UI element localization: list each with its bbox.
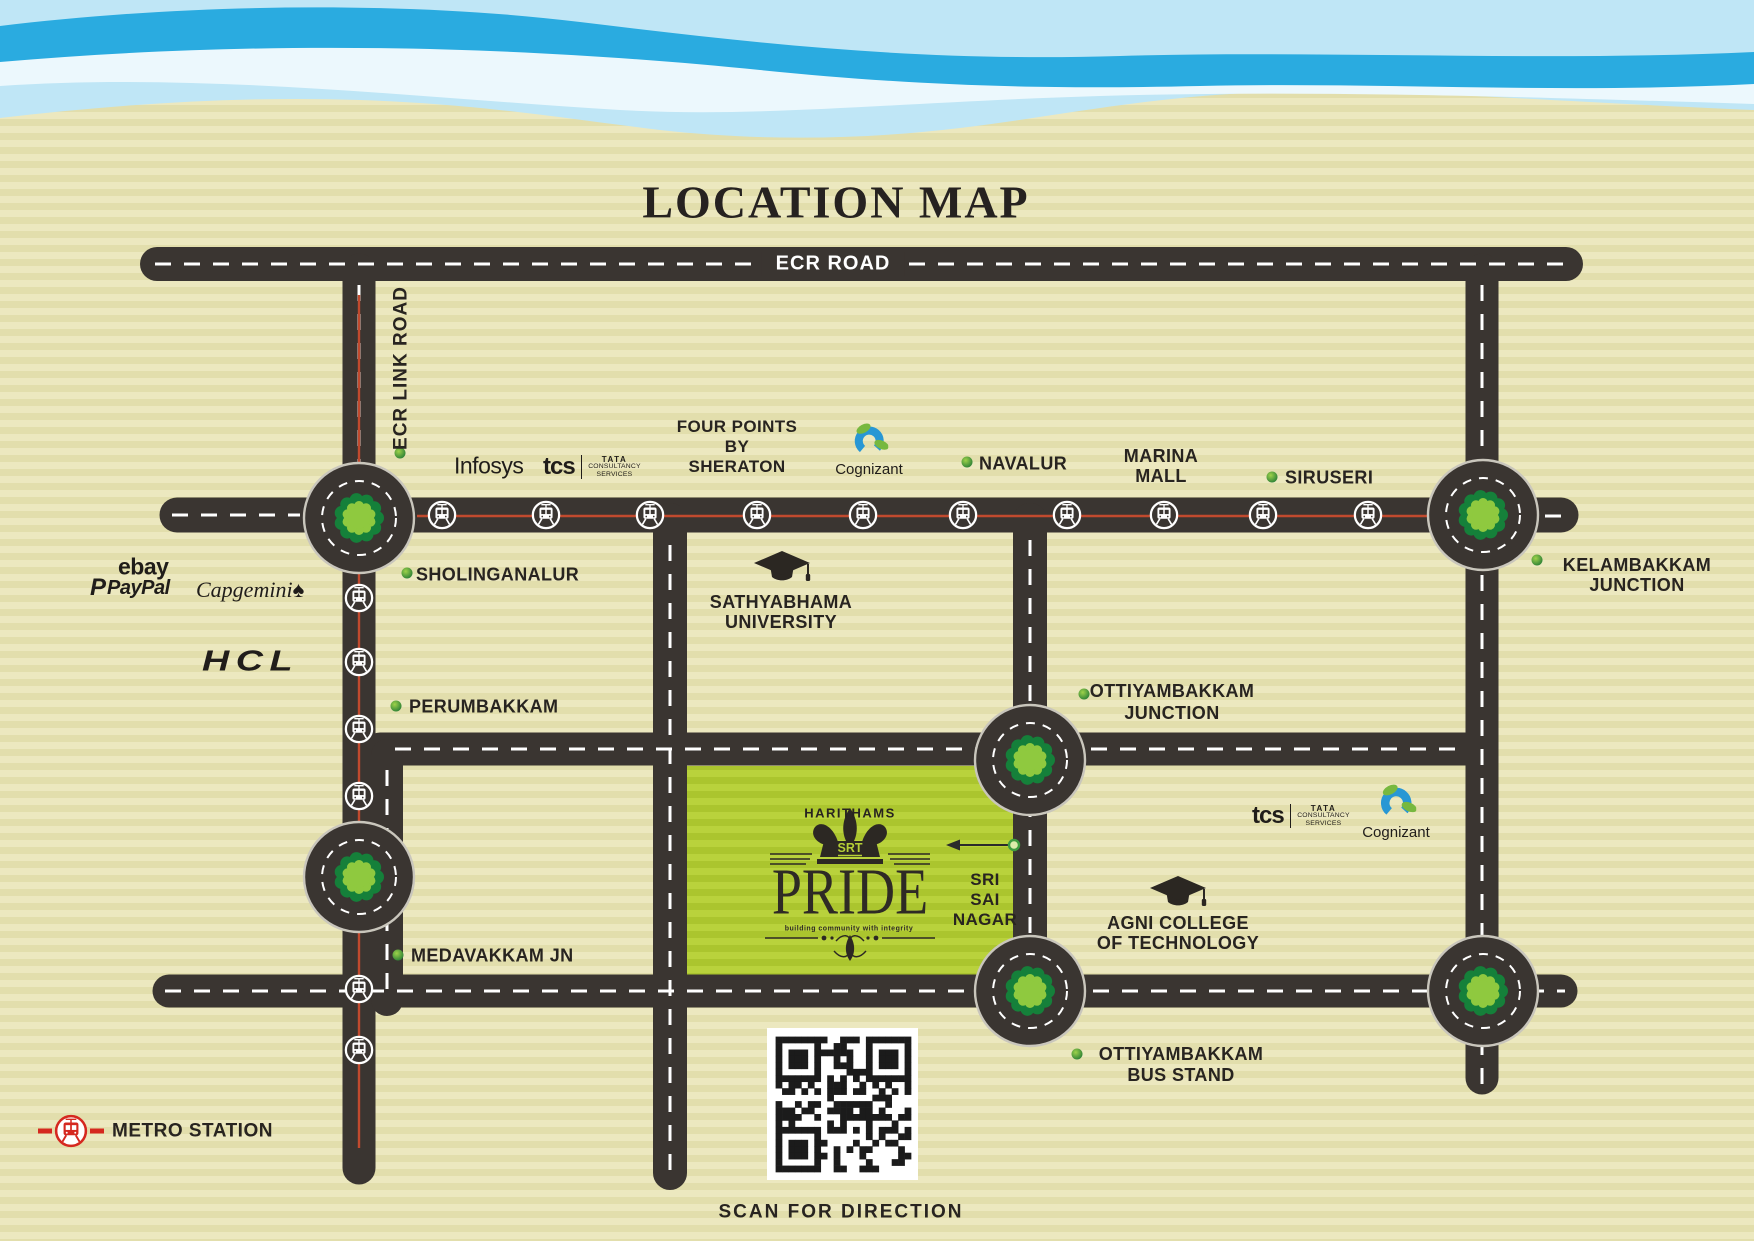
tcs-fullname: TATA CONSULTANCY SERVICES <box>1297 805 1350 828</box>
paypal-mark-icon: P <box>90 574 106 602</box>
metro-station-icon <box>346 649 372 675</box>
place-label-perumbakkam: PERUMBAKKAM <box>409 697 558 718</box>
place-marker-dot <box>1079 689 1090 700</box>
tata-text: TATA <box>588 456 641 464</box>
page-title: LOCATION MAP <box>642 192 1029 213</box>
place-label-navalur: NAVALUR <box>979 454 1067 475</box>
metro-station-icon <box>850 502 876 528</box>
metro-station-icon <box>1355 502 1381 528</box>
roundabout <box>304 822 414 932</box>
metro-station-icon <box>346 585 372 611</box>
cognizant-logo-2: Cognizant <box>1362 783 1430 841</box>
metro-station-icon <box>346 716 372 742</box>
place-label-marina-mall: MARINA MALL <box>1124 446 1198 486</box>
cognizant-logo: Cognizant <box>835 422 903 478</box>
roundabout <box>975 705 1085 815</box>
place-label-kelambakkam-junction: KELAMBAKKAM JUNCTION <box>1563 555 1711 595</box>
place-label-sholinganalur: SHOLINGANALUR <box>416 565 579 586</box>
place-label-siruseri: SIRUSERI <box>1285 468 1373 489</box>
roundabout <box>304 463 414 573</box>
metro-station-icon <box>637 502 663 528</box>
place-label-agni-college: AGNI COLLEGE OF TECHNOLOGY <box>1097 913 1259 953</box>
place-label-ottiyambakkam-bus-stand: OTTIYAMBAKKAM BUS STAND <box>1099 1044 1264 1086</box>
place-marker-dot <box>391 701 402 712</box>
road-label-ecr: ECR ROAD <box>762 252 905 277</box>
place-marker-dot <box>962 457 973 468</box>
services-text: SERVICES <box>1297 820 1350 828</box>
tcs-logo: tcs TATA CONSULTANCY SERVICES <box>543 455 641 479</box>
metro-station-icon <box>533 502 559 528</box>
roundabout <box>975 936 1085 1046</box>
tcs-wordmark: tcs <box>1252 805 1284 827</box>
place-marker-dot <box>1072 1049 1083 1060</box>
place-label-medavakkam-jn: MEDAVAKKAM JN <box>411 946 574 967</box>
metro-station-icon <box>346 1037 372 1063</box>
project-name: PRIDE <box>772 882 928 903</box>
capgemini-logo: Capgemini♠ <box>196 577 304 603</box>
project-tagline: building community with integrity <box>785 919 914 940</box>
cognizant-wordmark: Cognizant <box>1362 824 1430 841</box>
place-label-four-points: FOUR POINTS BY SHERATON <box>677 417 798 477</box>
metro-station-icon <box>1054 502 1080 528</box>
metro-station-icon <box>346 976 372 1002</box>
hcl-logo: HCL <box>202 646 299 679</box>
metro-station-icon <box>950 502 976 528</box>
services-text: SERVICES <box>588 471 641 479</box>
consultancy-text: CONSULTANCY <box>1297 812 1350 820</box>
college-cap-icon <box>1150 876 1206 906</box>
metro-station-icon <box>1151 502 1177 528</box>
place-label-ottiyambakkam-junction: OTTIYAMBAKKAM JUNCTION <box>1090 680 1255 724</box>
paypal-logo: P PayPal <box>90 574 170 602</box>
crown-monogram: SRT <box>838 841 863 855</box>
tata-text: TATA <box>1297 805 1350 813</box>
project-brand: HARITHAMS <box>804 803 896 824</box>
road-label-ecr-link: ECR LINK ROAD <box>391 286 412 450</box>
red-tram-icon <box>56 1116 86 1146</box>
place-marker-dot <box>1532 555 1543 566</box>
place-marker-dot <box>402 568 413 579</box>
place-label-sri-sai-nagar: SRI SAI NAGAR <box>953 870 1017 930</box>
roundabout <box>1428 936 1538 1046</box>
cognizant-icon <box>1376 783 1416 823</box>
metro-station-icon <box>429 502 455 528</box>
cognizant-wordmark: Cognizant <box>835 461 903 478</box>
roundabout <box>1428 460 1538 570</box>
infosys-logo: Infosys <box>454 453 523 480</box>
tcs-logo-2: tcs TATA CONSULTANCY SERVICES <box>1252 804 1350 828</box>
metro-station-icon <box>346 783 372 809</box>
legend-metro-label: METRO STATION <box>112 1121 273 1142</box>
water-waves <box>0 0 1754 138</box>
paypal-wordmark: PayPal <box>107 577 170 600</box>
metro-station-icon <box>744 502 770 528</box>
location-map-page: SRT LOCATION MAP ECR ROAD ECR LINK ROAD … <box>0 0 1754 1241</box>
tcs-fullname: TATA CONSULTANCY SERVICES <box>588 456 641 479</box>
qr-caption: SCAN FOR DIRECTION <box>719 1202 964 1223</box>
tcs-divider <box>581 455 583 479</box>
tcs-divider <box>1290 804 1292 828</box>
metro-station-icon <box>1250 502 1276 528</box>
university-cap-icon <box>754 551 810 581</box>
capgemini-wordmark: Capgemini <box>196 577 293 602</box>
consultancy-text: CONSULTANCY <box>588 463 641 471</box>
capgemini-spade-icon: ♠ <box>293 577 305 602</box>
cognizant-icon <box>850 422 888 460</box>
place-label-sathyabhama-university: SATHYABHAMA UNIVERSITY <box>710 592 852 632</box>
legend-metro-icon <box>38 1116 104 1146</box>
place-marker-dot <box>393 950 404 961</box>
tcs-wordmark: tcs <box>543 456 575 478</box>
place-marker-dot <box>1267 472 1278 483</box>
